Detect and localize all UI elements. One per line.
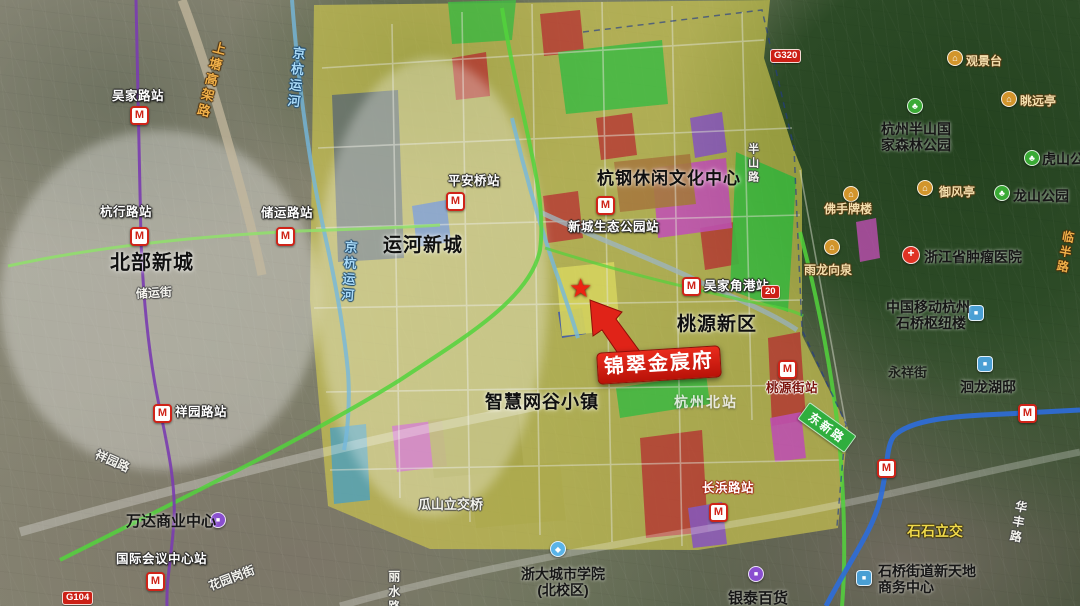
highlight-star-icon: ★: [569, 275, 592, 301]
satellite-planning-map: 北部新城 运河新城 杭钢休闲文化中心 桃源新区 智慧网谷小镇 M 吴家路站 M …: [0, 0, 1080, 606]
highlight-arrow: [0, 0, 1080, 606]
